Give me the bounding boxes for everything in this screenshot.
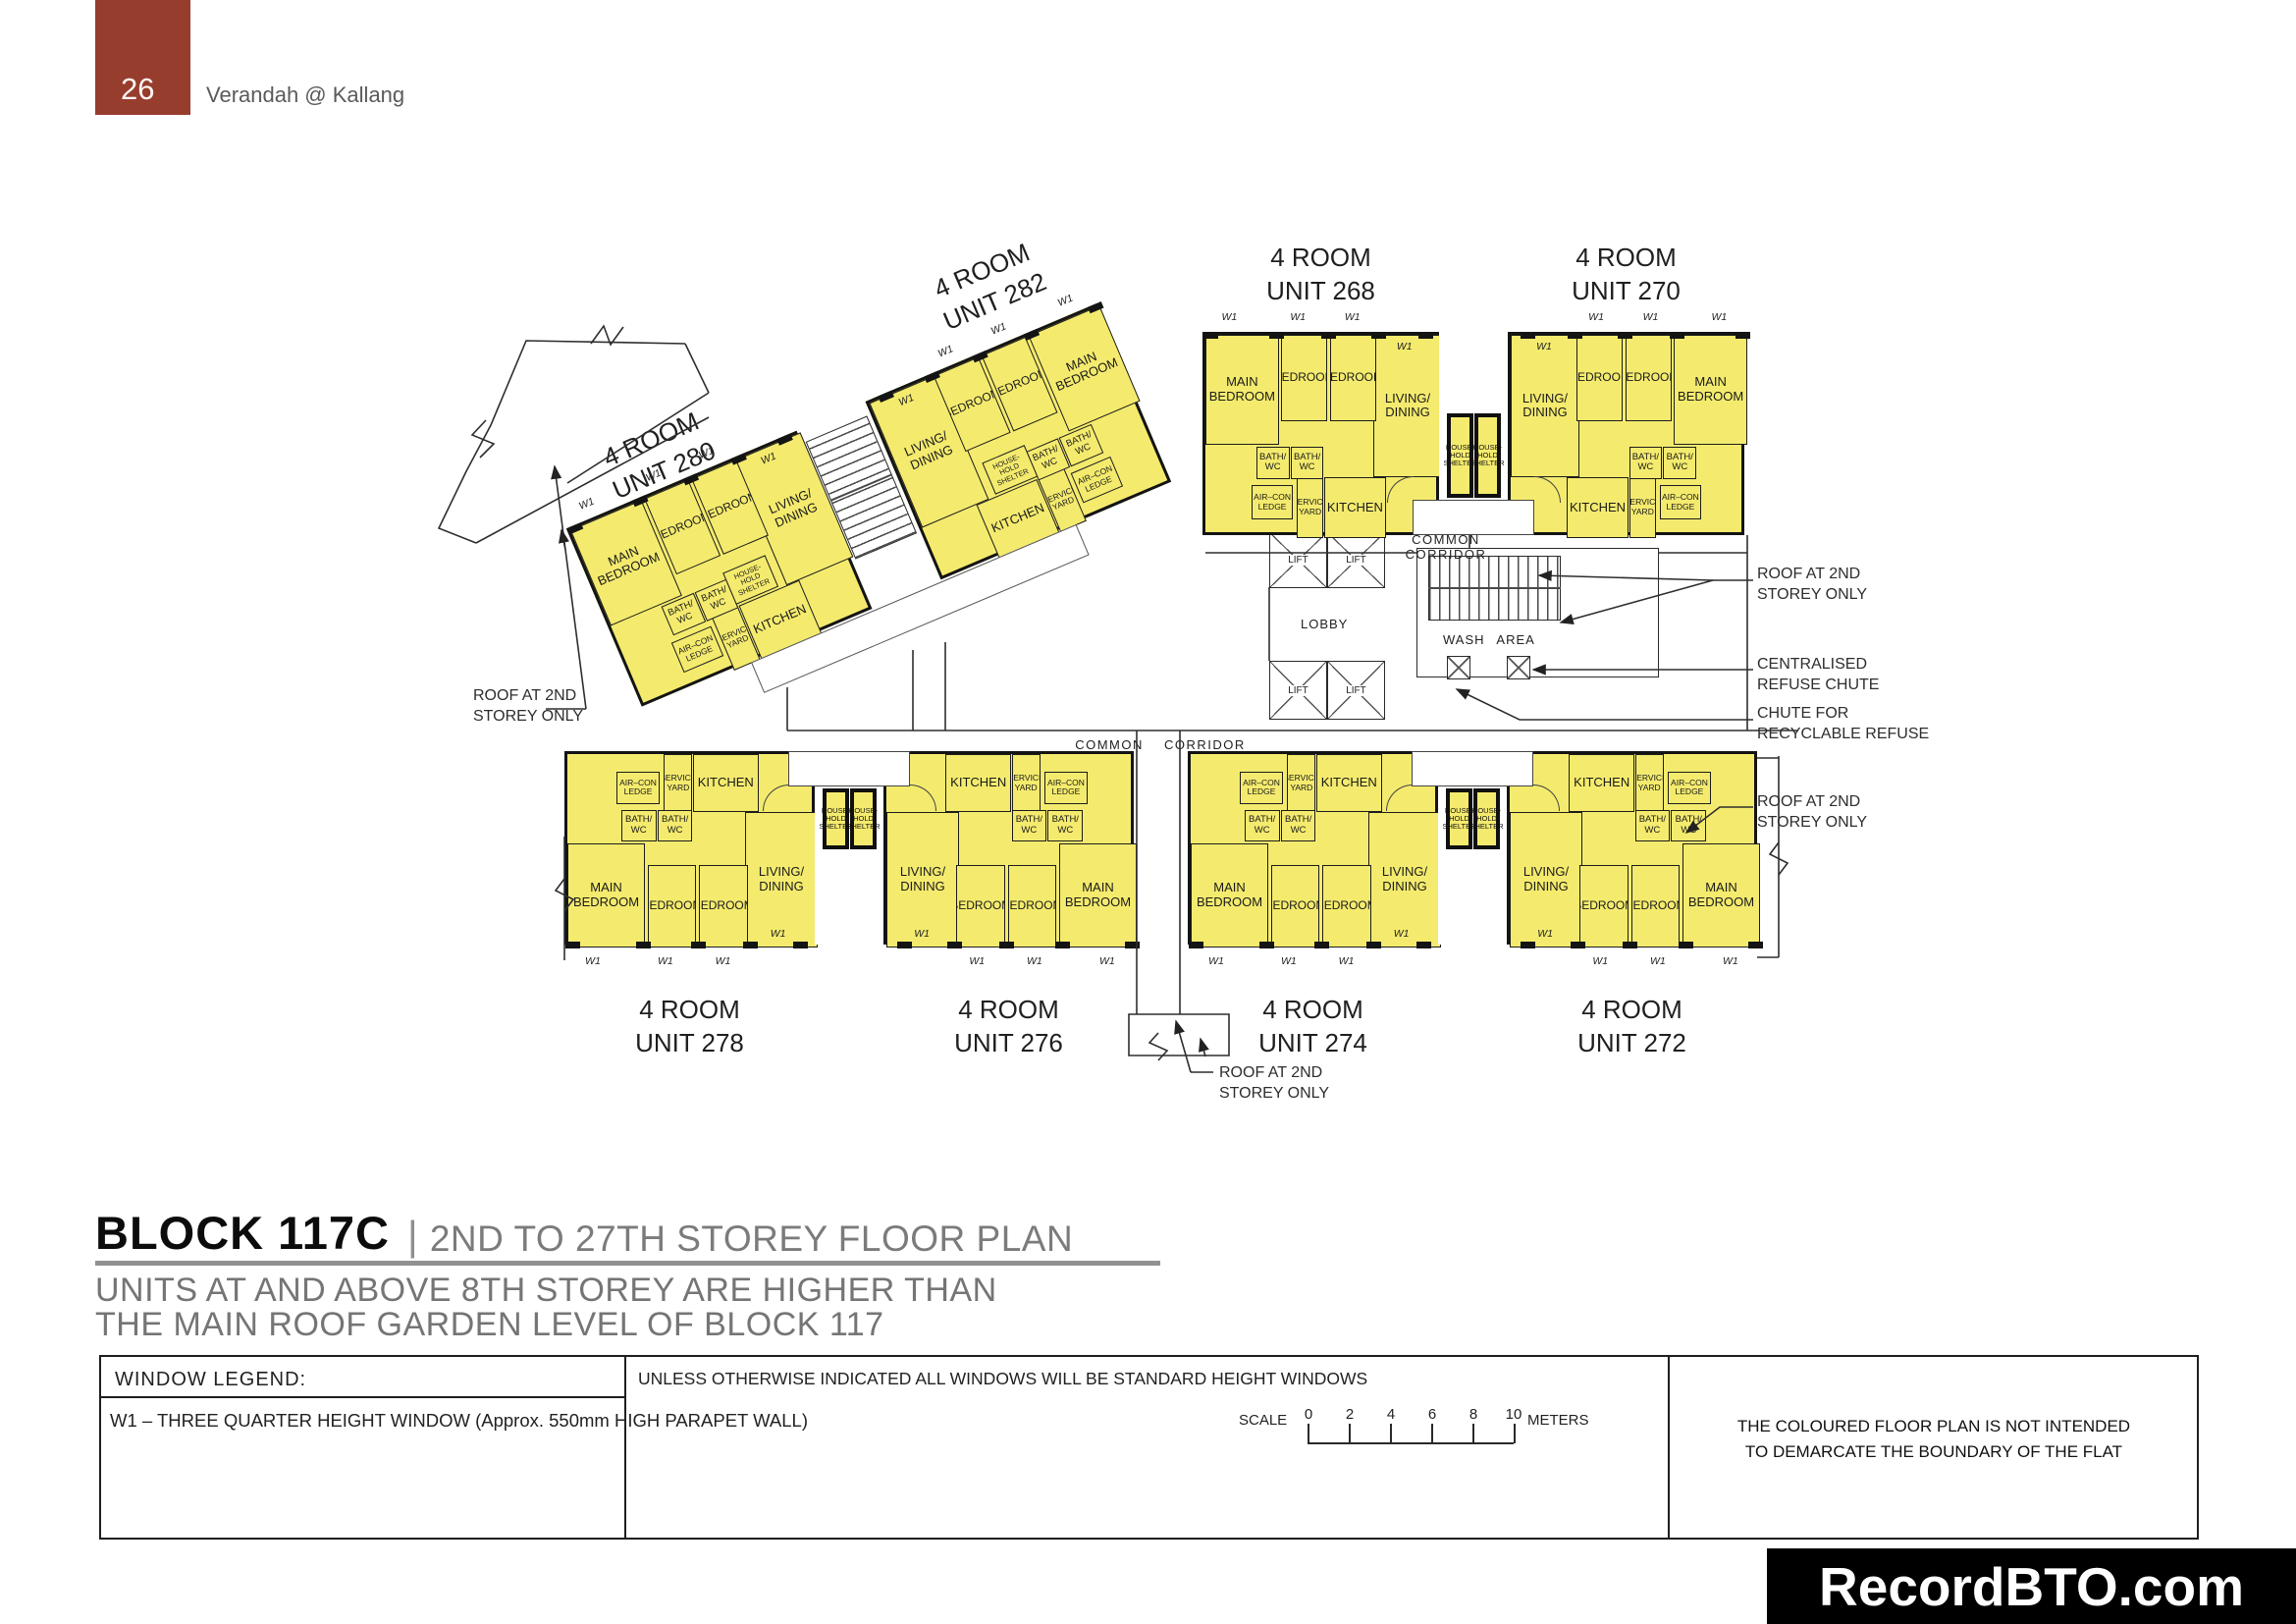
room-label: SERVICE YARD (1635, 774, 1664, 792)
unit-number: UNIT 272 (1539, 1027, 1726, 1060)
room-kitchen: KITCHEN (1316, 754, 1383, 812)
wall-segment (999, 942, 1014, 948)
room-label: KITCHEN (1327, 501, 1383, 515)
project-name: Verandah @ Kallang (206, 82, 404, 108)
w1-window-label: W1 (1537, 928, 1553, 940)
room-label: SERVICE YARD (1287, 774, 1315, 792)
w1-window-label: W1 (716, 955, 731, 967)
angled-block: KITCHENSERVICE YARDAIR–CON LEDGEBATH/ WC… (566, 303, 1171, 706)
legend-divider-h (99, 1396, 624, 1398)
unit-type: 4 ROOM (916, 994, 1102, 1027)
lift-label: LIFT (1286, 555, 1310, 566)
w1-window-label: W1 (1650, 955, 1666, 967)
room-label: MAIN BEDROOM (573, 881, 639, 909)
w1-window-label: W1 (936, 343, 955, 359)
unit-block: KITCHENSERVICE YARDAIR–CON LEDGEBATH/ WC… (1507, 751, 1757, 945)
room-label: BEDROOM (1008, 899, 1057, 912)
w1-window-label: W1 (1394, 928, 1410, 940)
title-underline (95, 1261, 1160, 1266)
room-bedroom: BEDROOM (1626, 335, 1672, 421)
unit-block: KITCHENSERVICE YARDAIR–CON LEDGEBATH/ WC… (1508, 332, 1744, 535)
room-label: BATH/ WC (1065, 430, 1097, 460)
room-label: BATH/ WC (667, 599, 699, 628)
break-symbol (1770, 842, 1788, 875)
room-label: BEDROOM (1631, 899, 1681, 912)
page-number: 26 (121, 72, 154, 107)
unit-type: 4 ROOM (597, 994, 783, 1027)
room-label: BATH/ WC (625, 815, 652, 836)
entry-alcove (788, 751, 910, 786)
room-label: BEDROOM (1322, 899, 1371, 912)
room-label: LIVING/ DINING (1522, 392, 1568, 420)
room-bedroom: BEDROOM (1281, 335, 1327, 421)
wall-segment (691, 942, 706, 948)
household-shelter: HOUSE- HOLD SHELTER (1474, 413, 1501, 498)
unit-type: 4 ROOM (1220, 994, 1407, 1027)
room-label: KITCHEN (698, 776, 754, 790)
unit-block: KITCHENSERVICE YARDAIR–CON LEDGEBATH/ WC… (1188, 751, 1438, 945)
room-service_yard: SERVICE YARD (1635, 754, 1664, 812)
title-row: BLOCK 117C | 2ND TO 27TH STOREY FLOOR PL… (95, 1206, 1073, 1260)
scale-unit: METERS (1527, 1412, 1589, 1429)
unit-type: 4 ROOM (1533, 242, 1720, 275)
scale-number: 8 (1466, 1406, 1481, 1423)
unit-number-label: 4 ROOMUNIT 268 (1228, 242, 1415, 308)
scale-number: 2 (1342, 1406, 1358, 1423)
w1-window-label: W1 (914, 928, 930, 940)
wall-segment (1568, 332, 1582, 339)
room-label: MAIN BEDROOM (1065, 881, 1131, 909)
lift-cell: LIFT (1269, 661, 1327, 720)
room-label: HOUSE- HOLD SHELTER (730, 562, 771, 597)
room-label: LIVING/ DINING (900, 865, 945, 893)
wall-segment (1748, 942, 1763, 948)
scale-tick (1349, 1424, 1351, 1443)
page-number-box: 26 (95, 0, 190, 115)
legend-divider-v1 (624, 1355, 626, 1540)
room-label: LIVING/ DINING (1382, 865, 1427, 893)
unit-number-label: 4 ROOMUNIT 276 (916, 994, 1102, 1060)
room-bath_wc: BATH/ WC (1629, 447, 1663, 479)
household-shelter: HOUSE- HOLD SHELTER (1446, 788, 1472, 849)
scale-tick (1308, 1424, 1309, 1443)
annotation-roof-left: ROOF AT 2ND STOREY ONLY (473, 685, 583, 727)
room-label: HOUSE- HOLD SHELTER (989, 452, 1030, 487)
room-label: AIR–CON LEDGE (1047, 779, 1085, 797)
room-label: AIR–CON LEDGE (1662, 493, 1699, 512)
w1-window-label: W1 (771, 928, 786, 940)
room-label: MAIN BEDROOM (1209, 375, 1275, 404)
scale-ruler-line (1308, 1442, 1514, 1444)
wall-segment (1366, 942, 1381, 948)
room-label: LIVING/ DINING (902, 429, 955, 473)
stair-landing-line (1428, 587, 1561, 589)
household-shelter: HOUSE- HOLD SHELTER (1447, 413, 1473, 498)
room-label: BATH/ WC (662, 815, 688, 836)
w1-window-label: W1 (1643, 311, 1659, 323)
w1-window-label: W1 (1027, 955, 1042, 967)
disclaimer: THE COLOURED FLOOR PLAN IS NOT INTENDED … (1669, 1414, 2199, 1466)
room-label: KITCHEN (752, 602, 809, 637)
room-main_bedroom: MAIN BEDROOM (1205, 335, 1279, 445)
wall-segment (947, 942, 962, 948)
room-label: BEDROOM (652, 509, 713, 545)
room-kitchen: KITCHEN (693, 754, 760, 812)
room-label: BATH/ WC (1632, 453, 1659, 473)
unit-type: 4 ROOM (1228, 242, 1415, 275)
room-bedroom: BEDROOM (1322, 865, 1371, 947)
room-bedroom: BEDROOM (1008, 865, 1057, 947)
wall-segment (1416, 942, 1431, 948)
unit-number-label: 4 ROOMUNIT 274 (1220, 994, 1407, 1060)
scale-tick (1431, 1424, 1433, 1443)
room-label: BEDROOM (648, 899, 697, 912)
room-label: BEDROOM (1330, 371, 1376, 384)
room-aircon_ledge: AIR–CON LEDGE (1660, 485, 1701, 519)
annotation-roof-right-bottom: ROOF AT 2ND STOREY ONLY (1757, 791, 1867, 833)
room-kitchen: KITCHEN (1569, 754, 1635, 812)
wall-segment (1670, 332, 1684, 339)
wall-segment (1623, 942, 1637, 948)
w1-window-label: W1 (1397, 341, 1413, 352)
room-label: SERVICE YARD (1012, 774, 1041, 792)
wall-segment (1618, 332, 1632, 339)
unit-number-label: 4 ROOMUNIT 270 (1533, 242, 1720, 308)
room-label: BEDROOM (1271, 899, 1320, 912)
lift-cell: LIFT (1327, 661, 1385, 720)
room-kitchen: KITCHEN (1324, 477, 1387, 538)
room-bedroom: BEDROOM (1576, 335, 1623, 421)
room-label: LIVING/ DINING (759, 865, 804, 893)
room-label: BEDROOM (699, 899, 748, 912)
household-shelter-label: HOUSE- HOLD SHELTER (846, 807, 880, 831)
room-aircon_ledge: AIR–CON LEDGE (1044, 772, 1089, 804)
room-label: MAIN BEDROOM (1688, 881, 1754, 909)
wall-segment (1521, 332, 1535, 339)
wall-segment (1125, 942, 1140, 948)
annotation-roof-right-top: ROOF AT 2ND STOREY ONLY (1757, 564, 1867, 605)
w1-window-label: W1 (1592, 955, 1608, 967)
wall-segment (1735, 332, 1750, 339)
room-bedroom: BEDROOM (699, 865, 748, 947)
wall-segment (1189, 942, 1203, 948)
room-label: MAIN BEDROOM (1197, 881, 1262, 909)
plan-linework (0, 0, 2296, 1276)
window-legend-w1: W1 – THREE QUARTER HEIGHT WINDOW (Approx… (110, 1410, 808, 1432)
unit-number-label: 4 ROOMUNIT 278 (597, 994, 783, 1060)
room-aircon_ledge: AIR–CON LEDGE (616, 772, 661, 804)
unit-block: KITCHENSERVICE YARDAIR–CON LEDGEBATH/ WC… (564, 751, 815, 945)
windows-note: UNLESS OTHERWISE INDICATED ALL WINDOWS W… (638, 1369, 1659, 1389)
room-label: MAIN BEDROOM (1678, 375, 1743, 404)
room-bedroom: BEDROOM (1271, 865, 1320, 947)
break-symbol (1149, 1033, 1167, 1060)
unit-number: UNIT 270 (1533, 275, 1720, 308)
scale-number: 10 (1504, 1406, 1523, 1423)
room-label: AIR–CON LEDGE (619, 779, 657, 797)
room-label: BATH/ WC (1052, 815, 1079, 836)
room-label: KITCHEN (1570, 501, 1626, 515)
lift-label: LIFT (1286, 685, 1310, 696)
roof-2nd-storey-box (1129, 1014, 1229, 1056)
watermark-banner: RecordBTO.com (1767, 1548, 2296, 1624)
room-aircon_ledge: AIR–CON LEDGE (1240, 772, 1284, 804)
w1-window-label: W1 (1208, 955, 1224, 967)
room-label: BATH/ WC (1667, 453, 1693, 473)
wall-segment (1571, 942, 1585, 948)
room-living_dining: LIVING/ DINING (1511, 335, 1579, 477)
unit-number: UNIT 278 (597, 1027, 783, 1060)
annotation-centralised-refuse: CENTRALISED REFUSE CHUTE (1757, 654, 1879, 695)
room-main_bedroom: MAIN BEDROOM (1191, 843, 1268, 947)
lobby-label: LOBBY (1301, 617, 1348, 631)
room-label: BEDROOM (956, 899, 1005, 912)
room-bath_wc: BATH/ WC (621, 810, 657, 841)
room-main_bedroom: MAIN BEDROOM (1059, 843, 1137, 947)
room-service_yard: SERVICE YARD (1629, 477, 1657, 538)
entry-alcove (1413, 500, 1534, 535)
title-note: UNITS AT AND ABOVE 8TH STOREY ARE HIGHER… (95, 1273, 997, 1341)
room-label: BATH/ WC (1016, 815, 1042, 836)
scale-number: 6 (1424, 1406, 1440, 1423)
household-shelter: HOUSE- HOLD SHELTER (1473, 788, 1500, 849)
w1-window-label: W1 (1339, 955, 1355, 967)
room-label: KITCHEN (989, 501, 1046, 536)
w1-window-label: W1 (1099, 955, 1115, 967)
w1-window-label: W1 (989, 320, 1008, 337)
room-label: AIR–CON LEDGE (1254, 493, 1291, 512)
room-label: BATH/ WC (700, 585, 732, 615)
annotation-roof-bottom: ROOF AT 2ND STOREY ONLY (1219, 1062, 1329, 1104)
room-service_yard: SERVICE YARD (1287, 754, 1315, 812)
room-bath_wc: BATH/ WC (1281, 810, 1316, 841)
entry-alcove (1412, 751, 1533, 786)
unit-block: KITCHENSERVICE YARDAIR–CON LEDGEBATH/ WC… (883, 751, 1134, 945)
room-bedroom: BEDROOM (1330, 335, 1376, 421)
wall-segment (1679, 942, 1693, 948)
room-service_yard: SERVICE YARD (664, 754, 692, 812)
room-label: LIVING/ DINING (767, 486, 820, 530)
wall-segment (1321, 332, 1336, 339)
room-kitchen: KITCHEN (1567, 477, 1629, 538)
wall-segment (1418, 332, 1433, 339)
scale-tick (1472, 1424, 1474, 1443)
room-label: BATH/ WC (1285, 815, 1311, 836)
window-legend-heading: WINDOW LEGEND: (115, 1369, 306, 1391)
wall-segment (1521, 942, 1535, 948)
room-service_yard: SERVICE YARD (1297, 477, 1324, 538)
room-main_bedroom: MAIN BEDROOM (1674, 335, 1747, 445)
room-bath_wc: BATH/ WC (658, 810, 693, 841)
wall-segment (897, 942, 912, 948)
unit-number-label: 4 ROOMUNIT 272 (1539, 994, 1726, 1060)
refuse-chute (1507, 656, 1530, 679)
wall-segment (793, 942, 808, 948)
room-label: SERVICE YARD (664, 774, 692, 792)
wall-segment (1269, 332, 1284, 339)
room-bath_wc: BATH/ WC (1663, 447, 1696, 479)
break-symbol (472, 420, 494, 458)
room-bedroom: BEDROOM (1579, 865, 1629, 947)
scale-label: SCALE (1239, 1412, 1287, 1429)
household-shelter-label: HOUSE- HOLD SHELTER (1469, 807, 1503, 831)
household-shelter-label: HOUSE- HOLD SHELTER (1470, 444, 1504, 467)
room-label: BATH/ WC (1032, 444, 1064, 473)
unit-number: UNIT 276 (916, 1027, 1102, 1060)
room-bedroom: BEDROOM (1631, 865, 1681, 947)
room-bath_wc: BATH/ WC (1671, 810, 1706, 841)
room-label: KITCHEN (1321, 776, 1377, 790)
block-title: BLOCK 117C (95, 1206, 390, 1260)
w1-window-label: W1 (1711, 311, 1727, 323)
w1-window-label: W1 (1588, 311, 1604, 323)
w1-window-label: W1 (969, 955, 985, 967)
room-label: SERVICE YARD (1629, 498, 1657, 516)
lift-cell: LIFT (1269, 532, 1327, 588)
w1-window-label: W1 (1723, 955, 1738, 967)
room-label: AIR–CON LEDGE (1243, 779, 1280, 797)
room-main_bedroom: MAIN BEDROOM (567, 843, 645, 947)
room-label: LIVING/ DINING (1523, 865, 1569, 893)
leader-recyclable-chute (1457, 689, 1753, 720)
w1-window-label: W1 (1281, 955, 1297, 967)
room-label: LIVING/ DINING (1385, 392, 1430, 420)
roof-outline-right (685, 344, 709, 393)
scale-tick (1514, 1424, 1516, 1443)
scale-tick (1390, 1424, 1392, 1443)
household-shelter: HOUSE- HOLD SHELTER (823, 788, 849, 849)
room-label: KITCHEN (950, 776, 1006, 790)
unit-type: 4 ROOM (1539, 994, 1726, 1027)
floor-plan-page: 26 Verandah @ Kallang (0, 0, 2296, 1624)
room-label: BATH/ WC (1639, 815, 1666, 836)
lift-label: LIFT (1344, 685, 1368, 696)
lift-label: LIFT (1344, 555, 1368, 566)
title-divider: | (407, 1213, 418, 1260)
room-bath_wc: BATH/ WC (1635, 810, 1671, 841)
unit-number: UNIT 274 (1220, 1027, 1407, 1060)
room-label: SERVICE YARD (1297, 498, 1324, 516)
room-bedroom: BEDROOM (648, 865, 697, 947)
wall-segment (743, 942, 758, 948)
room-label: MAIN BEDROOM (590, 536, 662, 588)
room-label: BEDROOM (1626, 371, 1672, 384)
w1-window-label: W1 (1536, 341, 1552, 352)
room-label: AIR–CON LEDGE (676, 633, 718, 665)
room-label: AIR–CON LEDGE (1076, 463, 1117, 495)
storey-subtitle: 2ND TO 27TH STOREY FLOOR PLAN (430, 1218, 1073, 1260)
w1-window-label: W1 (1056, 292, 1075, 308)
w1-window-label: W1 (1290, 311, 1306, 323)
room-kitchen: KITCHEN (945, 754, 1012, 812)
room-label: KITCHEN (1574, 776, 1629, 790)
common-corridor-label: COMMON CORRIDOR (1062, 737, 1258, 752)
room-label: MAIN BEDROOM (1048, 342, 1120, 394)
wall-segment (1314, 942, 1329, 948)
wall-segment (1371, 332, 1386, 339)
room-bath_wc: BATH/ WC (1291, 447, 1324, 479)
room-label: BATH/ WC (1249, 815, 1275, 836)
household-shelter: HOUSE- HOLD SHELTER (850, 788, 877, 849)
wall-segment (1259, 942, 1274, 948)
room-label: BATH/ WC (1294, 453, 1320, 473)
w1-window-label: W1 (658, 955, 673, 967)
wall-segment (565, 942, 580, 948)
unit-block: KITCHENSERVICE YARDAIR–CON LEDGEBATH/ WC… (1202, 332, 1439, 535)
room-aircon_ledge: AIR–CON LEDGE (1668, 772, 1712, 804)
wall-segment (636, 942, 651, 948)
room-label: BEDROOM (988, 365, 1049, 402)
room-bedroom: BEDROOM (956, 865, 1005, 947)
unit-number: UNIT 268 (1228, 275, 1415, 308)
scale-number: 0 (1301, 1406, 1316, 1423)
w1-window-label: W1 (1222, 311, 1238, 323)
watermark-text: RecordBTO.com (1819, 1555, 2244, 1618)
w1-window-label: W1 (1345, 311, 1361, 323)
room-main_bedroom: MAIN BEDROOM (1682, 843, 1760, 947)
room-label: BEDROOM (1281, 371, 1327, 384)
room-service_yard: SERVICE YARD (1012, 754, 1041, 812)
wall-segment (1203, 332, 1218, 339)
room-bath_wc: BATH/ WC (1256, 447, 1290, 479)
room-label: BEDROOM (1576, 371, 1623, 384)
wall-segment (1055, 942, 1070, 948)
room-label: BATH/ WC (1259, 453, 1286, 473)
room-bath_wc: BATH/ WC (1047, 810, 1083, 841)
common-corridor-label: COMMON CORRIDOR (1372, 532, 1520, 562)
room-label: BATH/ WC (1676, 815, 1702, 836)
refuse-chute (1447, 656, 1470, 679)
room-living_dining: LIVING/ DINING (1373, 335, 1442, 477)
room-label: AIR–CON LEDGE (1671, 779, 1708, 797)
room-label: BEDROOM (941, 386, 1002, 422)
room-label: BEDROOM (1579, 899, 1629, 912)
annotation-recyclable-chute: CHUTE FOR RECYCLABLE REFUSE (1757, 703, 1929, 744)
wash-area-label: WASH AREA (1443, 632, 1535, 647)
break-symbol (591, 326, 623, 345)
w1-window-label: W1 (585, 955, 601, 967)
room-bath_wc: BATH/ WC (1245, 810, 1280, 841)
room-bath_wc: BATH/ WC (1012, 810, 1047, 841)
room-aircon_ledge: AIR–CON LEDGE (1252, 485, 1293, 519)
scale-number: 4 (1383, 1406, 1399, 1423)
leader-roof-bottom (1176, 1021, 1191, 1072)
